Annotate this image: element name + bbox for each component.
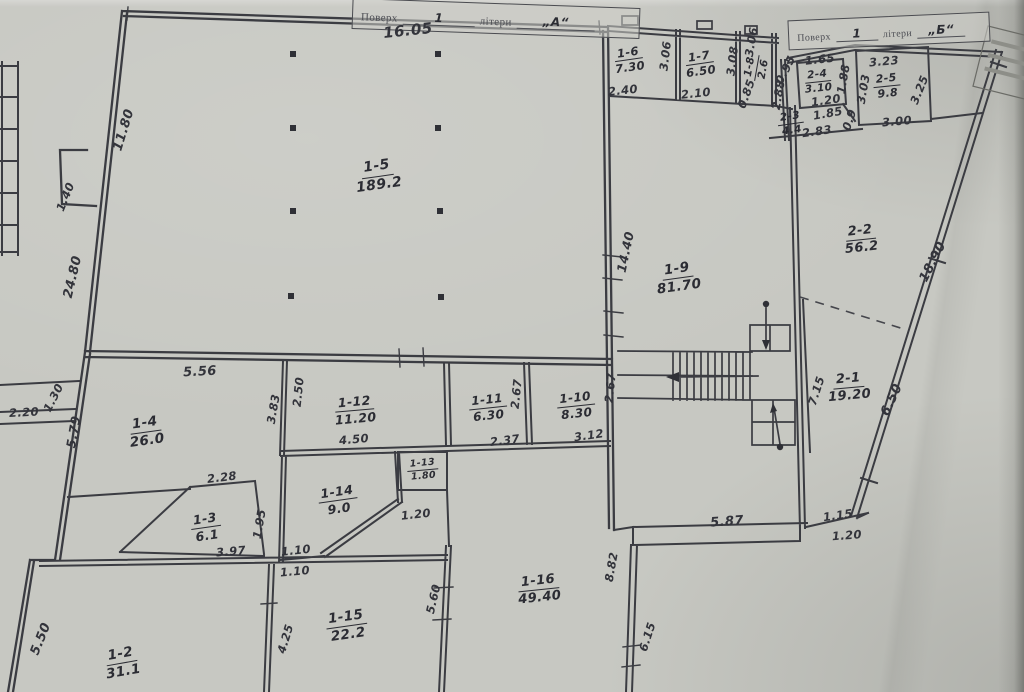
dimension-label: 1.15	[822, 508, 853, 524]
room-area: 56.2	[844, 239, 879, 259]
room-area: 7.30	[614, 58, 646, 76]
room-area: 4.4	[781, 123, 802, 139]
dimension-label: 2.37	[489, 433, 520, 448]
dimension-label: 4.25	[276, 623, 296, 655]
dimension-label: 6.50	[879, 382, 905, 418]
dimension-label: 5.79	[65, 415, 83, 449]
room-label-1-11: 1-116.30	[468, 391, 509, 426]
room-label-1-15: 1-1522.2	[324, 606, 370, 646]
room-area: 8.30	[561, 405, 594, 423]
dimension-label: 3.97	[216, 545, 247, 559]
dimension-label: 8.82	[604, 551, 621, 583]
dimension-label: 3.25	[909, 74, 931, 106]
room-area: 26.0	[129, 430, 166, 452]
dimension-label: 5.87	[710, 514, 745, 529]
room-label-1-9: 1-981.70	[653, 258, 702, 299]
dimension-label: 2.40	[607, 84, 638, 99]
room-label-1-16: 1-1649.40	[516, 571, 562, 609]
dimension-label: 3.00	[882, 115, 913, 129]
room-area: 22.2	[330, 624, 367, 646]
dimension-label: 2.83	[801, 124, 832, 140]
dimension-label: 3.83	[266, 393, 283, 425]
dimension-label: 2.10	[680, 87, 711, 102]
dimension-label: 5.50	[29, 621, 54, 657]
dimension-label: 24.80	[62, 255, 84, 300]
room-label-2-5: 2-59.8	[872, 70, 902, 101]
dimension-label: 7.15	[807, 375, 827, 407]
dimension-label: 4.50	[339, 433, 370, 447]
dimension-label: 1.20	[832, 529, 863, 543]
dimension-label: 5.56	[183, 365, 217, 380]
dimension-label: 3.03	[856, 73, 873, 105]
dimension-label: 3.12	[573, 428, 604, 444]
room-label-2-1: 2-119.20	[826, 369, 872, 406]
dimension-label: 1.85	[812, 106, 844, 123]
dimension-label: 2.28	[206, 470, 237, 485]
dimension-label: 0.9	[841, 108, 859, 132]
room-area: 19.20	[828, 387, 872, 407]
room-area: 6.1	[195, 526, 220, 545]
dimension-label: 1.30	[42, 382, 66, 414]
dimension-label: 5.60	[425, 583, 443, 615]
floorplan-scan: Поверх 1 літери „А“ Поверх 1 літери „Б“ …	[0, 0, 1024, 692]
dimension-label: 2.67	[604, 372, 619, 403]
dimension-label: 2.20	[9, 406, 40, 419]
dimension-label: 1.10	[280, 565, 311, 579]
room-area: 6.50	[685, 62, 717, 80]
room-area: 1.80	[411, 469, 437, 483]
dimension-label: 3.08	[725, 45, 740, 76]
room-area: 9.0	[327, 499, 352, 518]
room-area: 11.20	[334, 409, 377, 428]
dimension-label: 3.06	[744, 26, 761, 58]
dimension-label: 1.10	[280, 544, 311, 559]
dimension-label: 1.20	[400, 508, 431, 523]
dimension-label: 1.88	[836, 63, 853, 95]
dimension-label: 2.50	[292, 376, 307, 407]
dimension-label: 14.40	[616, 230, 637, 273]
dimension-label: 16.05	[383, 21, 434, 41]
room-label-1-10: 1-108.30	[556, 389, 597, 424]
dimension-label: 1.65	[804, 53, 835, 68]
dimension-label: 2.67	[510, 378, 525, 409]
dimension-label: 11.80	[111, 107, 136, 152]
room-label-1-6: 1-67.30	[612, 43, 646, 77]
dimension-label: 18.90	[917, 240, 948, 284]
dimension-label: 3.06	[658, 40, 673, 71]
room-label-1-4: 1-426.0	[126, 412, 165, 451]
room-label-1-13: 1-131.80	[406, 456, 439, 483]
room-area: 9.8	[877, 85, 899, 101]
dimension-label: 1.40	[55, 181, 77, 213]
room-label-1-3: 1-36.1	[189, 509, 223, 545]
room-label-2-2: 2-256.2	[842, 222, 879, 259]
room-area: 49.40	[518, 588, 563, 609]
dimension-label: 6.15	[638, 621, 658, 653]
dimension-label: 1.95	[252, 508, 269, 540]
dimension-label: 0.85	[736, 78, 757, 110]
room-label-1-7: 1-76.50	[683, 47, 717, 81]
room-label-1-12: 1-1211.20	[333, 392, 377, 428]
room-label-1-14: 1-149.0	[316, 481, 359, 518]
handwritten-labels-layer: 1-5189.21-67.301-76.501-82.62-43.102-59.…	[0, 0, 1024, 692]
dimension-label: 3.23	[869, 55, 900, 69]
room-label-1-5: 1-5189.2	[353, 155, 404, 197]
room-area: 2.6	[756, 58, 772, 80]
room-label-1-2: 1-231.1	[102, 643, 142, 683]
dimension-label: 2.88	[771, 79, 788, 111]
room-area: 6.30	[473, 407, 506, 425]
